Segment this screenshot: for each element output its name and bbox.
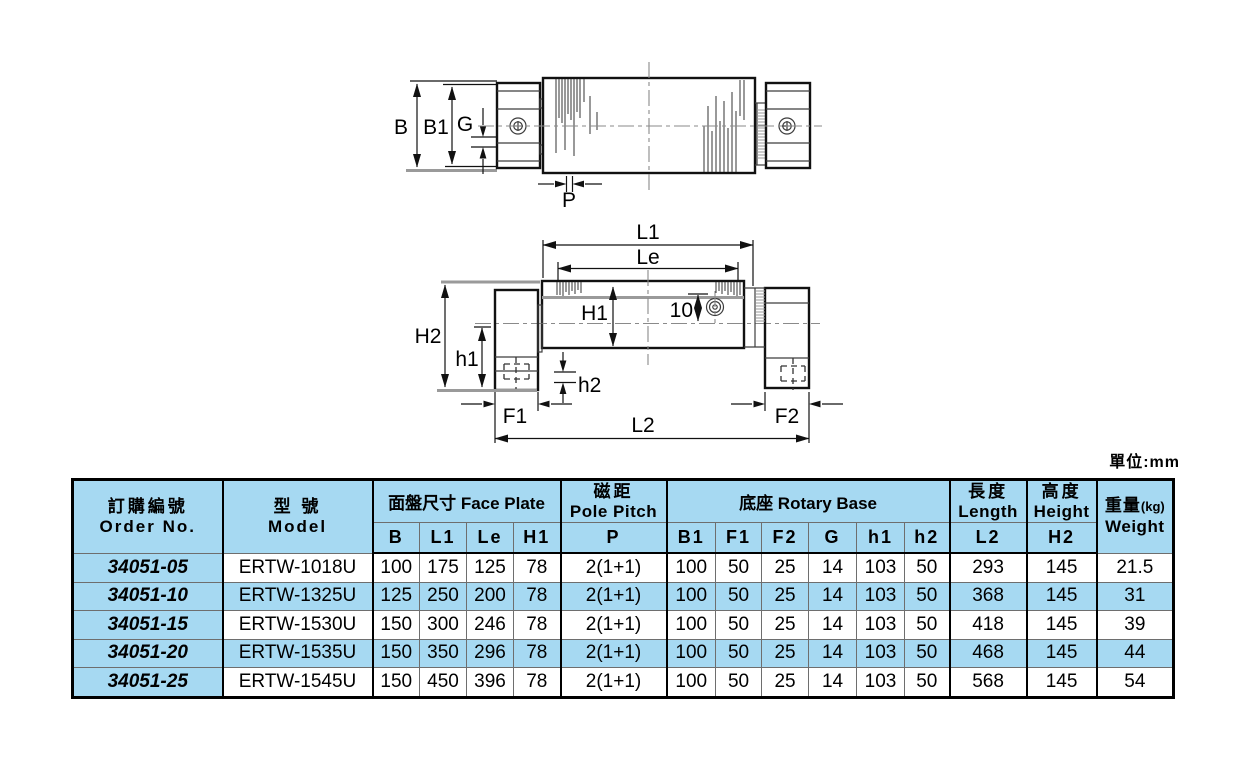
dim-label-L1: L1 [636, 221, 659, 244]
value-cell: 50 [905, 582, 950, 611]
model-cell: ERTW-1018U [223, 553, 373, 582]
value-cell: 468 [950, 639, 1027, 668]
value-cell: 350 [420, 639, 467, 668]
value-cell: 54 [1097, 668, 1174, 698]
header-face-plate: 面盤尺寸 Face Plate [373, 480, 561, 523]
value-cell: 78 [514, 582, 561, 611]
header-col-H1: H1 [514, 523, 561, 554]
value-cell: 50 [905, 611, 950, 640]
dim-label-Le: Le [636, 246, 659, 269]
table-row: 34051-15ERTW-1530U150300246782(1+1)10050… [73, 611, 1174, 640]
value-cell: 44 [1097, 639, 1174, 668]
model-cell: ERTW-1535U [223, 639, 373, 668]
value-cell: 103 [857, 582, 905, 611]
table-row: 34051-05ERTW-1018U100175125782(1+1)10050… [73, 553, 1174, 582]
unit-label: 單位:mm [940, 448, 1180, 472]
side-view-drawing: B B1 G [394, 62, 822, 212]
value-cell: 300 [420, 611, 467, 640]
dim-label-B: B [394, 116, 408, 139]
header-rotary-base: 底座 Rotary Base [667, 480, 950, 523]
value-cell: 14 [809, 582, 857, 611]
header-col-L1: L1 [420, 523, 467, 554]
dim-label-H1: H1 [581, 302, 608, 325]
value-cell: 50 [905, 668, 950, 698]
value-cell: 296 [467, 639, 514, 668]
value-cell: 125 [373, 582, 420, 611]
value-cell: 25 [762, 639, 809, 668]
header-col-Le: Le [467, 523, 514, 554]
model-cell: ERTW-1325U [223, 582, 373, 611]
dim-label-P: P [562, 189, 576, 212]
spec-table: 訂購編號 Order No. 型 號 Model 面盤尺寸 Face Plate… [71, 478, 1175, 699]
value-cell: 103 [857, 668, 905, 698]
value-cell: 78 [514, 611, 561, 640]
header-col-L2: L2 [950, 523, 1027, 554]
value-cell: 50 [905, 553, 950, 582]
table-body: 34051-05ERTW-1018U100175125782(1+1)10050… [73, 553, 1174, 697]
header-pole-pitch: 磁距 Pole Pitch [561, 480, 667, 523]
value-cell: 396 [467, 668, 514, 698]
value-cell: 2(1+1) [561, 553, 667, 582]
value-cell: 39 [1097, 611, 1174, 640]
value-cell: 150 [373, 611, 420, 640]
value-cell: 2(1+1) [561, 639, 667, 668]
dim-label-h2: h2 [578, 374, 601, 397]
front-view-drawing: L1 Le H1 10 [415, 221, 843, 443]
value-cell: 200 [467, 582, 514, 611]
model-cell: ERTW-1545U [223, 668, 373, 698]
value-cell: 14 [809, 611, 857, 640]
table-row: 34051-20ERTW-1535U150350296782(1+1)10050… [73, 639, 1174, 668]
value-cell: 25 [762, 582, 809, 611]
value-cell: 175 [420, 553, 467, 582]
dim-label-F1: F1 [503, 405, 528, 428]
header-length: 長度 Length [950, 480, 1027, 523]
header-col-H2: H2 [1027, 523, 1097, 554]
value-cell: 145 [1027, 582, 1097, 611]
value-cell: 14 [809, 639, 857, 668]
header-weight: 重量(kg) Weight [1097, 480, 1174, 554]
value-cell: 418 [950, 611, 1027, 640]
dimension-drawing: B B1 G [0, 0, 1240, 470]
value-cell: 368 [950, 582, 1027, 611]
value-cell: 150 [373, 639, 420, 668]
value-cell: 100 [667, 668, 716, 698]
value-cell: 100 [667, 639, 716, 668]
value-cell: 50 [716, 582, 762, 611]
value-cell: 25 [762, 553, 809, 582]
dim-label-F2: F2 [775, 405, 800, 428]
value-cell: 293 [950, 553, 1027, 582]
dim-label-L2: L2 [631, 414, 654, 437]
dim-label-h1: h1 [455, 348, 478, 371]
value-cell: 50 [716, 639, 762, 668]
value-cell: 78 [514, 639, 561, 668]
value-cell: 145 [1027, 611, 1097, 640]
order-no-cell: 34051-05 [73, 553, 223, 582]
header-col-F2: F2 [762, 523, 809, 554]
header-col-h1: h1 [857, 523, 905, 554]
value-cell: 145 [1027, 639, 1097, 668]
value-cell: 103 [857, 553, 905, 582]
value-cell: 2(1+1) [561, 611, 667, 640]
dim-label-10: 10 [670, 299, 693, 322]
value-cell: 50 [716, 553, 762, 582]
value-cell: 145 [1027, 553, 1097, 582]
value-cell: 25 [762, 611, 809, 640]
value-cell: 246 [467, 611, 514, 640]
value-cell: 50 [905, 639, 950, 668]
value-cell: 100 [667, 611, 716, 640]
value-cell: 31 [1097, 582, 1174, 611]
table-header: 訂購編號 Order No. 型 號 Model 面盤尺寸 Face Plate… [73, 480, 1174, 554]
table-row: 34051-25ERTW-1545U150450396782(1+1)10050… [73, 668, 1174, 698]
value-cell: 250 [420, 582, 467, 611]
value-cell: 78 [514, 668, 561, 698]
dim-label-G: G [457, 113, 473, 136]
header-model: 型 號 Model [223, 480, 373, 554]
order-no-cell: 34051-20 [73, 639, 223, 668]
value-cell: 2(1+1) [561, 668, 667, 698]
value-cell: 78 [514, 553, 561, 582]
value-cell: 14 [809, 553, 857, 582]
header-col-B: B [373, 523, 420, 554]
order-no-cell: 34051-25 [73, 668, 223, 698]
value-cell: 103 [857, 639, 905, 668]
dim-label-H2: H2 [415, 325, 442, 348]
value-cell: 100 [667, 553, 716, 582]
value-cell: 150 [373, 668, 420, 698]
model-cell: ERTW-1530U [223, 611, 373, 640]
header-order-no: 訂購編號 Order No. [73, 480, 223, 554]
order-no-cell: 34051-10 [73, 582, 223, 611]
header-col-G: G [809, 523, 857, 554]
value-cell: 21.5 [1097, 553, 1174, 582]
value-cell: 145 [1027, 668, 1097, 698]
header-height: 高度 Height [1027, 480, 1097, 523]
value-cell: 50 [716, 611, 762, 640]
value-cell: 125 [467, 553, 514, 582]
header-col-F1: F1 [716, 523, 762, 554]
value-cell: 450 [420, 668, 467, 698]
value-cell: 14 [809, 668, 857, 698]
header-col-h2: h2 [905, 523, 950, 554]
value-cell: 568 [950, 668, 1027, 698]
value-cell: 50 [716, 668, 762, 698]
header-col-B1: B1 [667, 523, 716, 554]
catalog-page: B B1 G [0, 0, 1240, 758]
value-cell: 25 [762, 668, 809, 698]
value-cell: 100 [667, 582, 716, 611]
value-cell: 100 [373, 553, 420, 582]
order-no-cell: 34051-15 [73, 611, 223, 640]
value-cell: 103 [857, 611, 905, 640]
dim-label-B1: B1 [423, 116, 449, 139]
value-cell: 2(1+1) [561, 582, 667, 611]
table-row: 34051-10ERTW-1325U125250200782(1+1)10050… [73, 582, 1174, 611]
header-col-P: P [561, 523, 667, 554]
